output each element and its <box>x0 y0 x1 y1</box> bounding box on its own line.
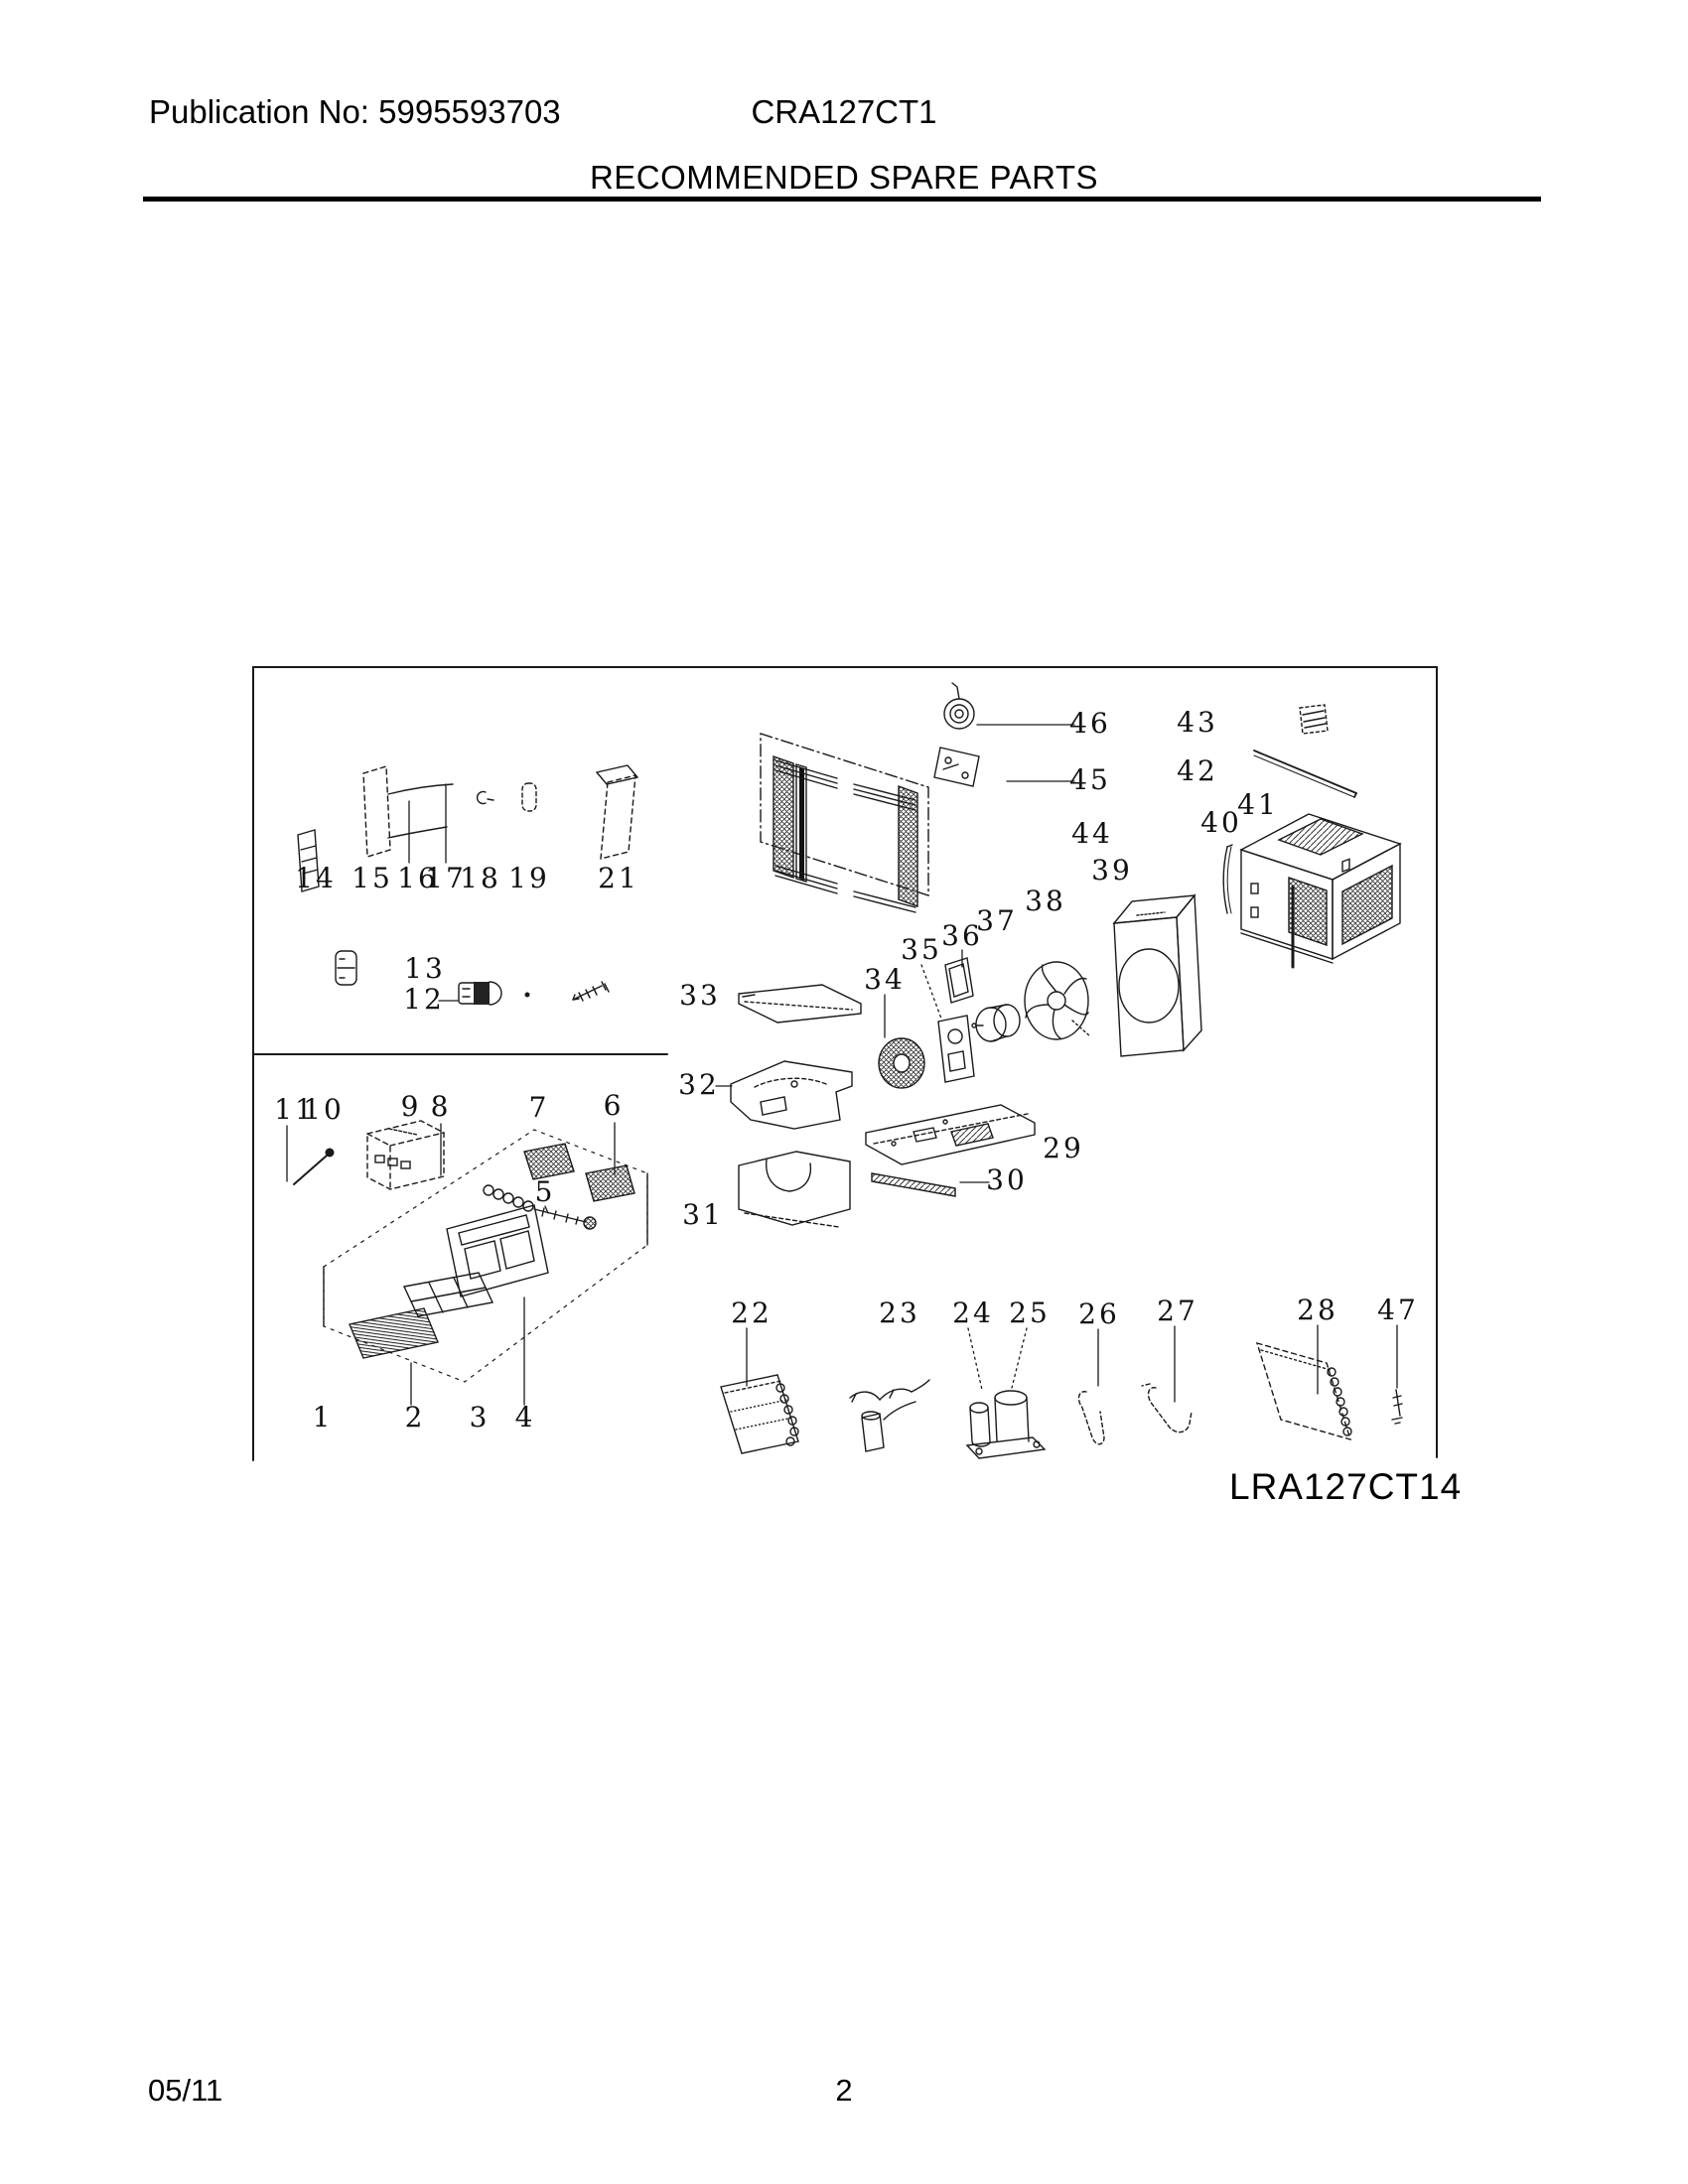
part-32-scroll-housing <box>731 1061 852 1129</box>
part-38-fan-blade <box>1025 962 1090 1039</box>
callout-32: 32 <box>678 1068 720 1101</box>
callout-12: 12 <box>403 983 445 1016</box>
callout-37: 37 <box>976 904 1018 937</box>
part-43-label-patch <box>1300 705 1328 734</box>
callout-9: 9 <box>401 1090 422 1123</box>
callout-21: 21 <box>598 862 639 894</box>
part-26-drain-hook <box>1079 1392 1104 1444</box>
callout-47: 47 <box>1377 1294 1419 1326</box>
callout-1: 1 <box>313 1401 334 1433</box>
part-45-motor-mount <box>934 748 979 786</box>
part-33-air-duct <box>739 985 861 1023</box>
callout-39: 39 <box>1091 854 1133 887</box>
callout-27: 27 <box>1157 1295 1198 1327</box>
callout-46: 46 <box>1069 707 1111 740</box>
part-10-11-pin <box>294 1149 335 1185</box>
callout-38: 38 <box>1025 885 1066 917</box>
callout-30: 30 <box>986 1163 1028 1196</box>
part-terminal-dot <box>525 993 530 998</box>
part-6-grille-insert <box>586 1165 634 1201</box>
document-page: Publication No: 5995593703 CRA127CT1 REC… <box>0 0 1688 2184</box>
callout-3: 3 <box>470 1401 491 1433</box>
callout-2: 2 <box>405 1401 426 1433</box>
part-28-condenser-coil <box>1257 1343 1351 1439</box>
callout-43: 43 <box>1177 706 1218 739</box>
callout-29: 29 <box>1043 1132 1084 1164</box>
callout-6: 6 <box>604 1089 625 1122</box>
callout-23: 23 <box>879 1297 920 1329</box>
diagram-model-label: LRA127CT14 <box>1229 1468 1462 1505</box>
part-44-window-frame <box>761 734 928 912</box>
parts-diagram: 1234567891011121314151617181921222324252… <box>0 0 1688 2184</box>
part-27-tube-clamp <box>1142 1384 1192 1433</box>
callout-42: 42 <box>1177 754 1218 787</box>
part-23-tubing-assembly <box>850 1380 929 1451</box>
callout-24: 24 <box>952 1297 994 1329</box>
callout-13: 13 <box>404 952 446 985</box>
callout-33: 33 <box>679 979 721 1012</box>
callout-25: 25 <box>1009 1297 1051 1329</box>
callout-14: 14 <box>295 862 337 894</box>
part-34-blower-wheel <box>879 1038 924 1088</box>
part-46-fan-clamp <box>944 683 974 729</box>
callout-7: 7 <box>529 1091 550 1124</box>
part-21-support-bracket <box>597 765 637 859</box>
callout-18: 18 <box>460 862 501 894</box>
part-12-capacitor <box>459 982 501 1005</box>
part-22-evaporator-coil <box>721 1375 798 1453</box>
part-24-25-compressor <box>967 1391 1045 1458</box>
part-47-screw <box>1392 1390 1402 1424</box>
part-19-bushing <box>522 783 536 811</box>
part-4-front-frame <box>447 1205 548 1297</box>
part-41-cabinet <box>1241 814 1400 967</box>
callout-45: 45 <box>1069 763 1111 796</box>
part-20-screw <box>573 982 609 1001</box>
part-39-fan-shroud <box>1114 895 1201 1056</box>
part-36-motor-gasket <box>945 958 973 1003</box>
callout-4: 4 <box>515 1401 536 1433</box>
part-13-cord-clamp <box>336 951 356 985</box>
callout-28: 28 <box>1297 1294 1338 1326</box>
part-35-motor-bracket <box>938 1016 974 1082</box>
callout-35: 35 <box>901 933 942 966</box>
callout-11: 11 <box>274 1093 316 1126</box>
callout-22: 22 <box>731 1297 773 1329</box>
part-7-grille-insert <box>524 1144 574 1179</box>
callout-5: 5 <box>535 1175 556 1208</box>
part-40-side-curtain <box>1223 845 1232 913</box>
callout-26: 26 <box>1078 1297 1120 1330</box>
part-18-clip <box>478 792 493 804</box>
part-2-front-grille <box>350 1308 438 1358</box>
callout-15: 15 <box>352 862 393 894</box>
callout-34: 34 <box>864 963 906 996</box>
part-15-16-17-bracket <box>363 766 453 857</box>
callout-41: 41 <box>1237 788 1279 821</box>
part-30-seal-strip <box>872 1173 955 1196</box>
callout-44: 44 <box>1071 817 1113 850</box>
part-37-fan-motor <box>972 1005 1020 1041</box>
callout-31: 31 <box>682 1198 724 1231</box>
callout-19: 19 <box>508 862 550 894</box>
part-29-base-pan <box>866 1105 1035 1164</box>
part-31-blower-housing <box>739 1152 850 1227</box>
callout-8: 8 <box>431 1090 452 1123</box>
footer-page-number: 2 <box>0 2075 1688 2106</box>
callout-40: 40 <box>1200 806 1242 839</box>
part-8-9-control-box <box>367 1121 444 1189</box>
